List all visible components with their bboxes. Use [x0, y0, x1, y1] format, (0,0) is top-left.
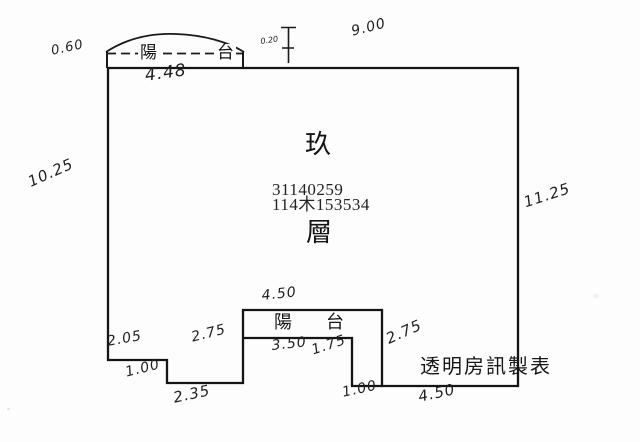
top-balcony-label-char1: 陽 [138, 44, 159, 61]
serial-number-2: 114木153534 [272, 196, 370, 213]
credit-stamp: 透明房訊製表 [420, 357, 552, 377]
thickness-tick-icon [281, 28, 296, 64]
top-balcony-label-char2: 台 [215, 44, 236, 61]
floor-character-top: 玖 [305, 132, 333, 158]
bottom-balcony-label-char1: 陽 [272, 313, 294, 331]
floor-plan-page: 玖 31140259 114木153534 層 陽 台 陽 台 透明房訊製表 0… [0, 0, 640, 442]
dim-bottom-balcony-inner-width: 3.50 [271, 335, 307, 353]
top-balcony-label: 陽 台 [138, 44, 236, 61]
bottom-balcony-label-char2: 台 [324, 313, 346, 331]
dim-bottom-balcony-width: 4.50 [261, 285, 297, 303]
scan-speck [593, 294, 599, 298]
scan-speck [7, 408, 10, 410]
floor-character-bottom: 層 [306, 220, 334, 246]
bottom-balcony-label: 陽 台 [272, 313, 346, 331]
